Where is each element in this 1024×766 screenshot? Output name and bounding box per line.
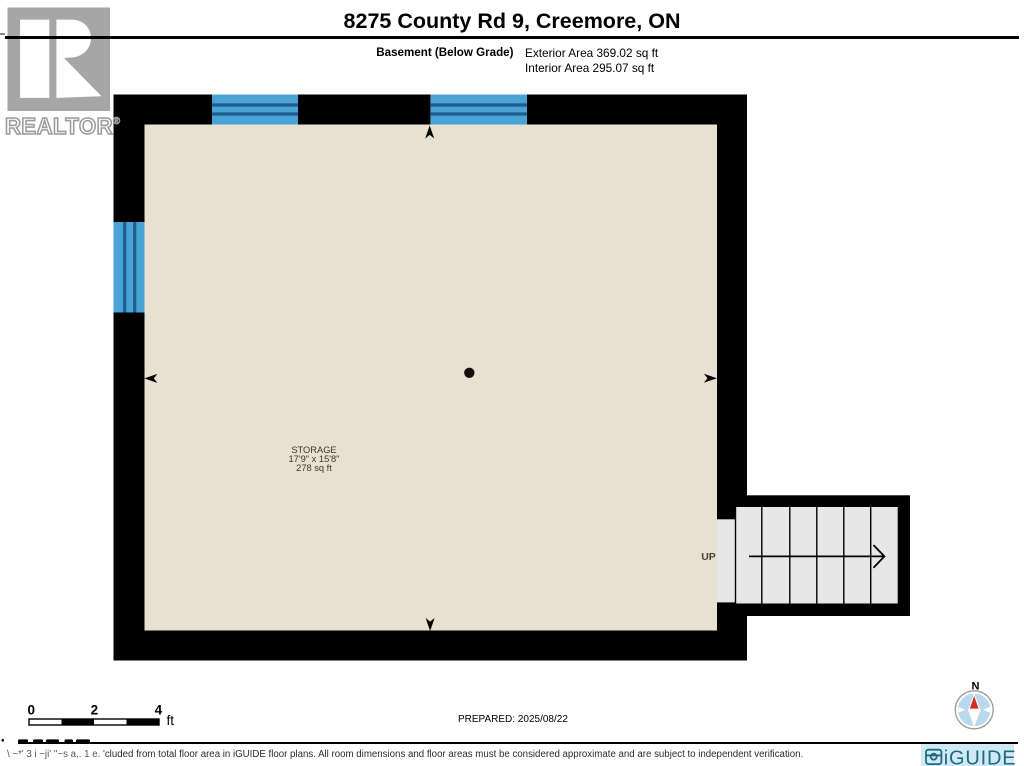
svg-text:0: 0 [28, 703, 36, 718]
svg-text:ft: ft [167, 713, 175, 728]
svg-text:iGUIDE: iGUIDE [944, 747, 1017, 766]
svg-text:4: 4 [155, 703, 163, 718]
svg-text:2: 2 [91, 703, 99, 718]
